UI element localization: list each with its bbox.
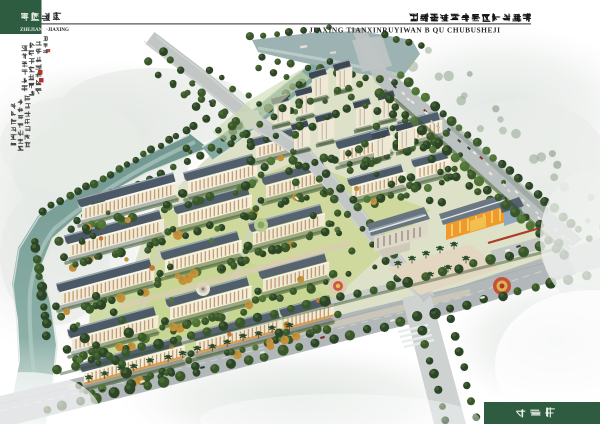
svg-text:ZHEJIANG·JIAXING: ZHEJIANG·JIAXING [20,28,69,33]
svg-text:JIAXING TIANXINRUYIWAN B QU CH: JIAXING TIANXINRUYIWAN B QU CHUBUSHEJI [309,26,501,35]
